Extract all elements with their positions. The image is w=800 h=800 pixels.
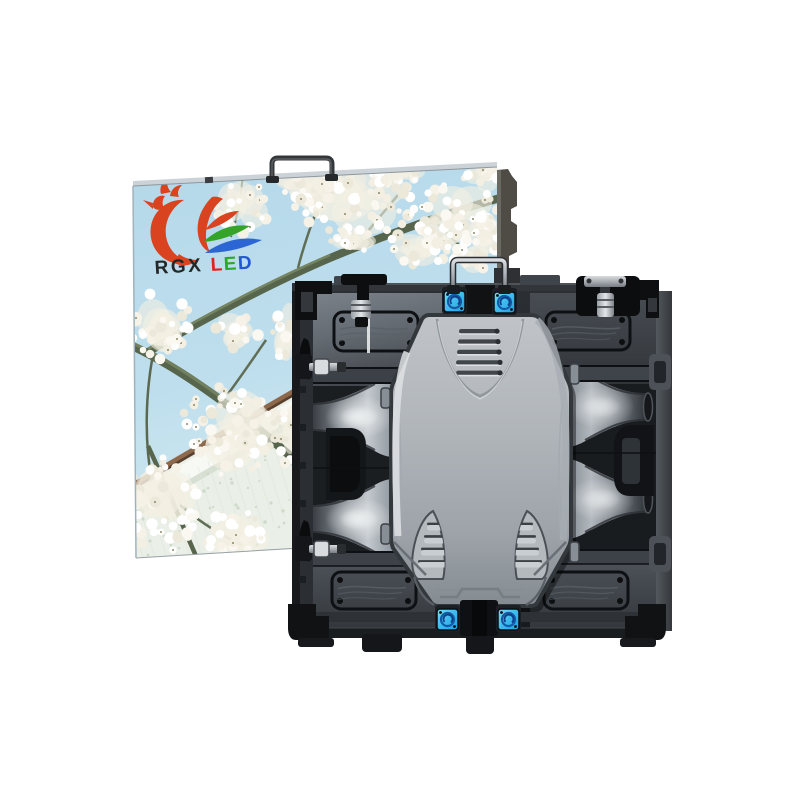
svg-text:RGX: RGX xyxy=(154,255,204,279)
svg-text:LED: LED xyxy=(210,252,254,276)
